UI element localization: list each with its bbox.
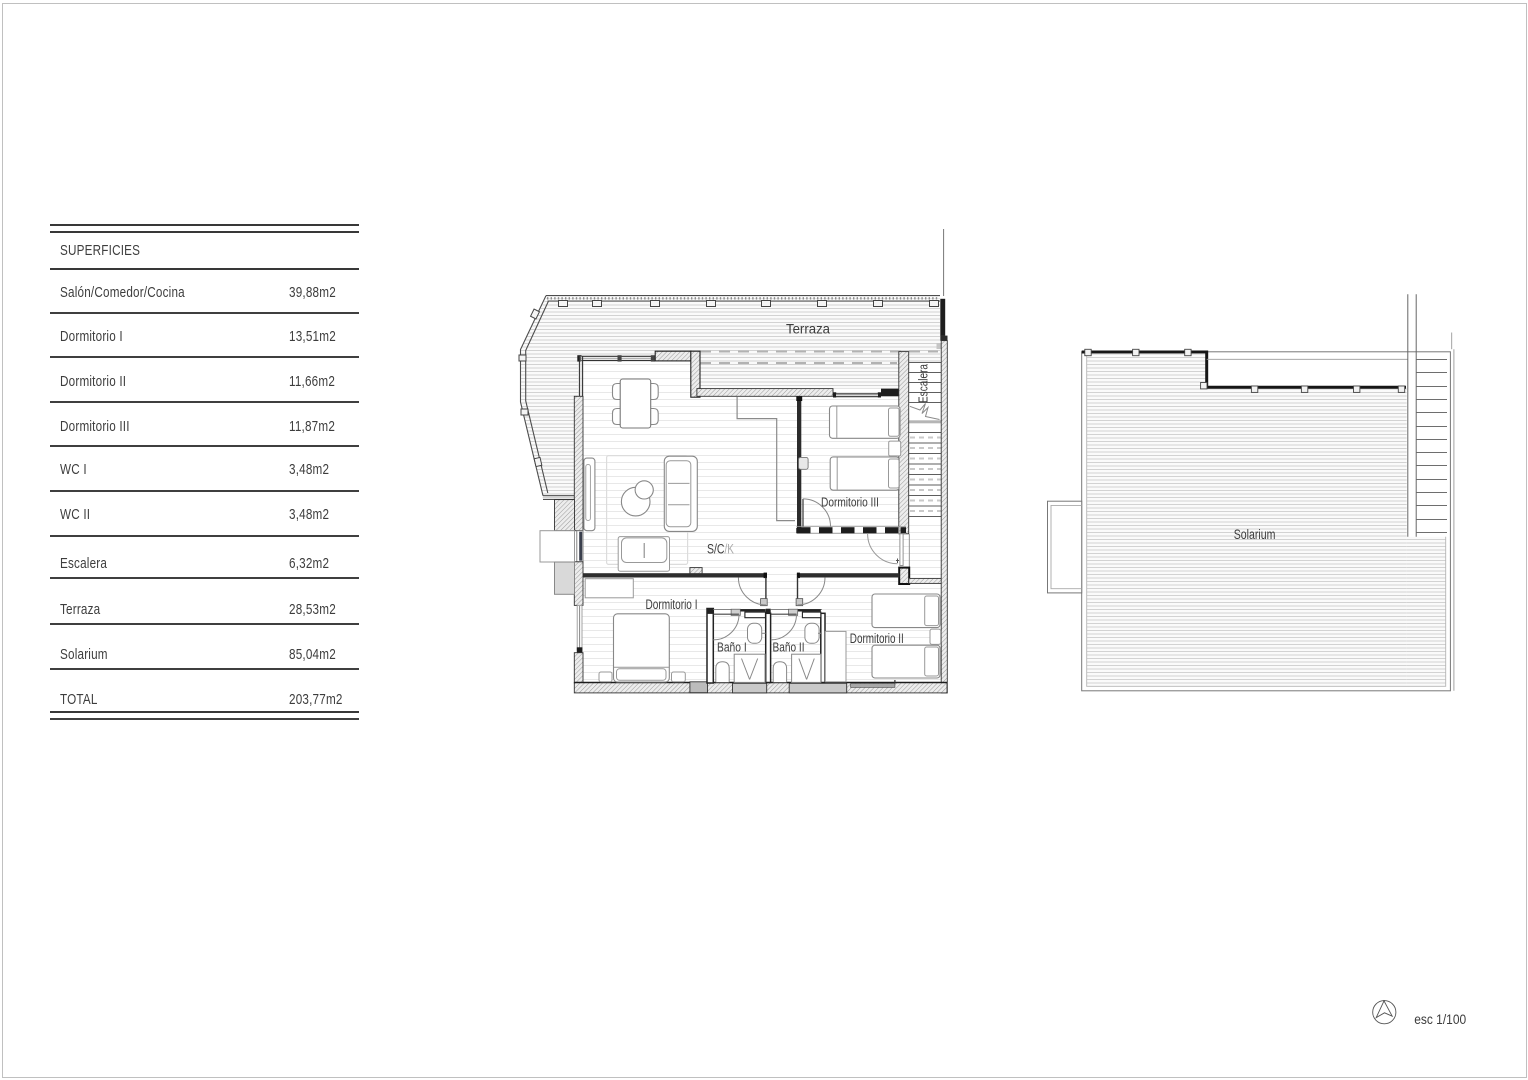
svg-text:esc 1/100: esc 1/100 — [1414, 1012, 1466, 1027]
svg-text:Baño I: Baño I — [717, 640, 747, 655]
svg-text:Terraza: Terraza — [786, 322, 830, 337]
svg-text:Escalera: Escalera — [917, 364, 931, 403]
svg-text:Baño II: Baño II — [773, 640, 805, 655]
svg-text:Dormitorio III: Dormitorio III — [821, 495, 879, 510]
svg-text:Dormitorio I: Dormitorio I — [646, 597, 698, 612]
svg-text:S/C/K: S/C/K — [707, 542, 734, 557]
svg-text:Solarium: Solarium — [1234, 527, 1276, 542]
svg-text:Dormitorio II: Dormitorio II — [850, 631, 904, 646]
